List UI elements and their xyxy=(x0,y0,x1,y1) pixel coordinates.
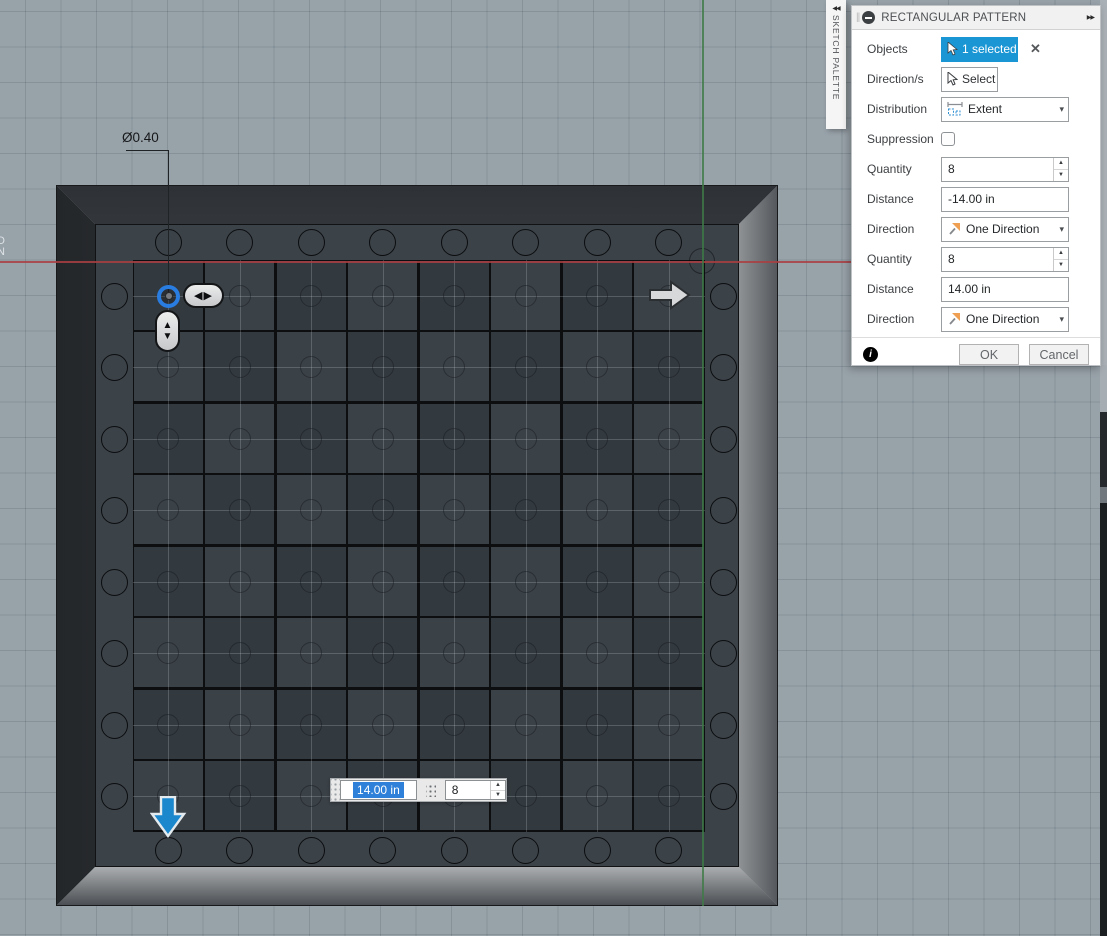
direction2-arrow-handle[interactable] xyxy=(150,796,187,838)
extent-icon xyxy=(947,102,963,116)
pattern-preview-circle xyxy=(372,356,394,378)
dimension-leader-horizontal xyxy=(126,150,169,151)
pattern-preview-circle xyxy=(515,356,537,378)
suppression-checkbox[interactable] xyxy=(941,132,955,146)
spinner-up-icon[interactable]: ▲ xyxy=(1054,248,1068,260)
border-hole-circle xyxy=(101,283,128,310)
border-hole-circle xyxy=(584,229,611,256)
suppression-label: Suppression xyxy=(852,132,941,146)
distance2-value: 14.00 in xyxy=(942,282,1068,296)
pattern-preview-circle xyxy=(229,499,251,521)
border-hole-circle xyxy=(226,229,253,256)
distribution-dropdown[interactable]: Extent ▾ xyxy=(941,97,1069,122)
border-hole-circle xyxy=(655,837,682,864)
border-hole-circle xyxy=(512,229,539,256)
border-hole-circle xyxy=(369,229,396,256)
pattern-preview-circle xyxy=(229,785,251,807)
dialog-header[interactable]: || RECTANGULAR PATTERN ▶▶ xyxy=(852,6,1100,30)
border-hole-circle xyxy=(101,640,128,667)
border-hole-circle xyxy=(441,229,468,256)
sketch-guide-vline xyxy=(526,260,527,832)
dialog-footer: i OK Cancel xyxy=(852,338,1100,371)
pattern-preview-circle xyxy=(515,714,537,736)
board-deck xyxy=(95,224,739,867)
collapse-left-icon: ◀◀ xyxy=(832,0,839,15)
pattern-preview-circle xyxy=(229,714,251,736)
pattern-preview-circle xyxy=(372,285,394,307)
objects-selected-text: 1 selected xyxy=(958,42,1017,56)
sketch-guide-hline xyxy=(133,510,705,511)
inline-distance-value: 14.00 in xyxy=(353,782,404,798)
spinner-down-icon[interactable]: ▼ xyxy=(491,791,505,800)
inline-edit-toolbar: 14.00 in 8 ▲ ▼ xyxy=(330,778,507,802)
pattern-preview-circle xyxy=(515,499,537,521)
pattern-preview-circle xyxy=(515,642,537,664)
pattern-preview-circle xyxy=(229,428,251,450)
border-hole-circle xyxy=(101,569,128,596)
pattern-preview-circle xyxy=(443,714,465,736)
border-hole-circle xyxy=(512,837,539,864)
rectangular-pattern-dialog: || RECTANGULAR PATTERN ▶▶ Objects 1 sele… xyxy=(851,5,1101,366)
direction1-dropdown[interactable]: One Direction ▾ xyxy=(941,217,1069,242)
sketch-guide-vline xyxy=(669,260,670,832)
pattern-preview-circle xyxy=(515,785,537,807)
direction2-dropdown[interactable]: One Direction ▾ xyxy=(941,307,1069,332)
quantity2-spinner: ▲ ▼ xyxy=(1053,248,1068,271)
pattern-preview-circle xyxy=(658,499,680,521)
quantity2-input[interactable]: 8 ▲ ▼ xyxy=(941,247,1069,272)
spinner-up-icon[interactable]: ▲ xyxy=(1054,158,1068,170)
sketch-palette-label: SKETCH PALETTE xyxy=(831,15,841,100)
flip-horizontal-icon: ◀▶ xyxy=(194,289,213,302)
sketch-guide-vline xyxy=(240,260,241,832)
spinner-up-icon[interactable]: ▲ xyxy=(491,781,505,791)
fusion-viewport: Ø0.40 ◀▶ ▲ ▼ 14.00 in 8 ▲ ▼ D N xyxy=(0,0,1107,936)
dialog-grip-icon[interactable]: || xyxy=(852,12,862,23)
caret-down-icon: ▾ xyxy=(1059,314,1064,325)
direction2-value: One Direction xyxy=(961,312,1059,326)
caret-down-icon: ▾ xyxy=(1059,104,1064,115)
sketch-guide-vline xyxy=(597,260,598,832)
sketch-guide-hline xyxy=(133,582,705,583)
quantity2-label: Quantity xyxy=(852,252,941,266)
quantity2-value: 8 xyxy=(942,252,1053,266)
pattern-preview-circle xyxy=(658,571,680,593)
distance1-value: -14.00 in xyxy=(942,192,1068,206)
distance1-label: Distance xyxy=(852,192,941,206)
sketch-guide-vline xyxy=(454,260,455,832)
pattern-preview-circle xyxy=(443,285,465,307)
border-hole-circle xyxy=(710,497,737,524)
pattern-preview-circle xyxy=(658,428,680,450)
pattern-preview-circle xyxy=(586,428,608,450)
one-direction-icon xyxy=(947,312,961,326)
border-hole-circle xyxy=(298,229,325,256)
border-hole-circle xyxy=(710,426,737,453)
border-hole-circle xyxy=(298,837,325,864)
pattern-preview-circle xyxy=(229,356,251,378)
command-circle-icon xyxy=(862,11,875,24)
pattern-preview-circle xyxy=(372,428,394,450)
pattern-preview-circle xyxy=(372,499,394,521)
direction1-label: Direction xyxy=(852,222,941,236)
y-axis-line xyxy=(702,0,704,906)
border-hole-circle xyxy=(710,783,737,810)
selected-point-dot xyxy=(165,292,173,300)
pattern-preview-circle xyxy=(157,571,179,593)
border-hole-circle xyxy=(655,229,682,256)
sketch-guide-hline xyxy=(133,725,705,726)
border-hole-circle xyxy=(584,837,611,864)
cancel-button[interactable]: Cancel xyxy=(1029,344,1089,365)
border-hole-circle xyxy=(101,354,128,381)
sketch-palette-tab[interactable]: ◀◀ SKETCH PALETTE xyxy=(826,0,846,129)
pattern-preview-circle xyxy=(372,571,394,593)
spinner-down-icon[interactable]: ▼ xyxy=(1054,260,1068,271)
border-hole-circle xyxy=(226,837,253,864)
sketch-guide-vline xyxy=(311,260,312,832)
pattern-preview-circle xyxy=(157,428,179,450)
spinner-down-icon[interactable]: ▼ xyxy=(1054,170,1068,181)
pattern-preview-circle xyxy=(586,714,608,736)
drag-handle-icon[interactable] xyxy=(331,779,340,801)
one-direction-icon xyxy=(947,222,961,236)
pattern-preview-circle xyxy=(229,285,251,307)
border-hole-circle xyxy=(710,569,737,596)
dimension-label[interactable]: Ø0.40 xyxy=(122,130,159,145)
directions-select-text: Select xyxy=(958,72,995,86)
border-hole-circle xyxy=(101,497,128,524)
pattern-preview-circle xyxy=(300,428,322,450)
divider-dots-icon xyxy=(417,779,445,801)
flip-horizontal-handle[interactable]: ◀▶ xyxy=(183,283,224,308)
clipped-edge-text-2: N xyxy=(0,247,5,258)
quantity1-value: 8 xyxy=(942,162,1053,176)
info-icon[interactable]: i xyxy=(863,347,878,362)
inline-quantity-value: 8 xyxy=(446,783,490,797)
inline-distance-input[interactable]: 14.00 in xyxy=(340,780,417,800)
distance2-label: Distance xyxy=(852,282,941,296)
pattern-preview-circle xyxy=(658,714,680,736)
pattern-preview-circle xyxy=(515,285,537,307)
quantity1-spinner: ▲ ▼ xyxy=(1053,158,1068,181)
dimension-leader-vertical xyxy=(168,151,169,296)
objects-label: Objects xyxy=(852,42,941,56)
pattern-preview-circle xyxy=(372,642,394,664)
flip-up-icon: ▲ xyxy=(163,320,173,331)
direction1-arrow-handle[interactable] xyxy=(649,280,691,310)
sketch-guide-hline xyxy=(133,367,705,368)
border-hole-circle xyxy=(101,783,128,810)
caret-down-icon: ▾ xyxy=(1059,224,1064,235)
distance2-input[interactable]: 14.00 in xyxy=(941,277,1069,302)
quantity1-label: Quantity xyxy=(852,162,941,176)
pattern-preview-circle xyxy=(443,428,465,450)
expand-right-icon[interactable]: ▶▶ xyxy=(1087,14,1100,21)
right-edge-strip xyxy=(1100,0,1107,936)
pattern-preview-circle xyxy=(443,571,465,593)
pattern-preview-circle xyxy=(300,285,322,307)
sketch-guide-hline xyxy=(133,653,705,654)
cursor-icon xyxy=(947,72,958,86)
pattern-preview-circle xyxy=(229,571,251,593)
pattern-preview-circle xyxy=(372,714,394,736)
quantity1-input[interactable]: 8 ▲ ▼ xyxy=(941,157,1069,182)
pattern-preview-circle xyxy=(300,571,322,593)
border-hole-circle xyxy=(710,640,737,667)
checkerboard xyxy=(133,260,705,832)
pattern-preview-circle xyxy=(515,428,537,450)
pattern-preview-circle xyxy=(586,285,608,307)
objects-selected-button[interactable]: 1 selected xyxy=(941,37,1018,62)
pattern-preview-circle xyxy=(300,714,322,736)
flip-vertical-handle[interactable]: ▲ ▼ xyxy=(155,310,180,352)
sketch-guide-hline xyxy=(133,439,705,440)
pattern-preview-circle xyxy=(157,714,179,736)
pattern-preview-circle xyxy=(229,642,251,664)
pattern-preview-circle xyxy=(658,642,680,664)
border-hole-circle xyxy=(155,837,182,864)
inline-quantity-input[interactable]: 8 ▲ ▼ xyxy=(445,780,506,800)
pattern-preview-circle xyxy=(586,571,608,593)
inline-quantity-spinner: ▲ ▼ xyxy=(490,781,505,799)
border-hole-circle xyxy=(710,283,737,310)
border-hole-circle xyxy=(710,354,737,381)
cursor-icon xyxy=(947,42,958,56)
ok-button[interactable]: OK xyxy=(959,344,1019,365)
direction2-label: Direction xyxy=(852,312,941,326)
pattern-preview-circle xyxy=(515,571,537,593)
border-hole-circle xyxy=(710,712,737,739)
flip-down-icon: ▼ xyxy=(163,331,173,342)
distribution-value: Extent xyxy=(963,102,1059,116)
distance1-input[interactable]: -14.00 in xyxy=(941,187,1069,212)
border-hole-circle xyxy=(101,712,128,739)
distribution-label: Distribution xyxy=(852,102,941,116)
directions-select-button[interactable]: Select xyxy=(941,67,998,92)
border-hole-circle xyxy=(441,837,468,864)
dialog-title: RECTANGULAR PATTERN xyxy=(881,12,1087,24)
border-hole-circle xyxy=(101,426,128,453)
pattern-preview-circle xyxy=(658,785,680,807)
directions-label: Direction/s xyxy=(852,72,941,86)
direction1-value: One Direction xyxy=(961,222,1059,236)
border-hole-circle xyxy=(369,837,396,864)
sketch-guide-vline xyxy=(383,260,384,832)
clear-selection-icon[interactable]: ✕ xyxy=(1030,41,1041,57)
pattern-preview-circle xyxy=(658,356,680,378)
